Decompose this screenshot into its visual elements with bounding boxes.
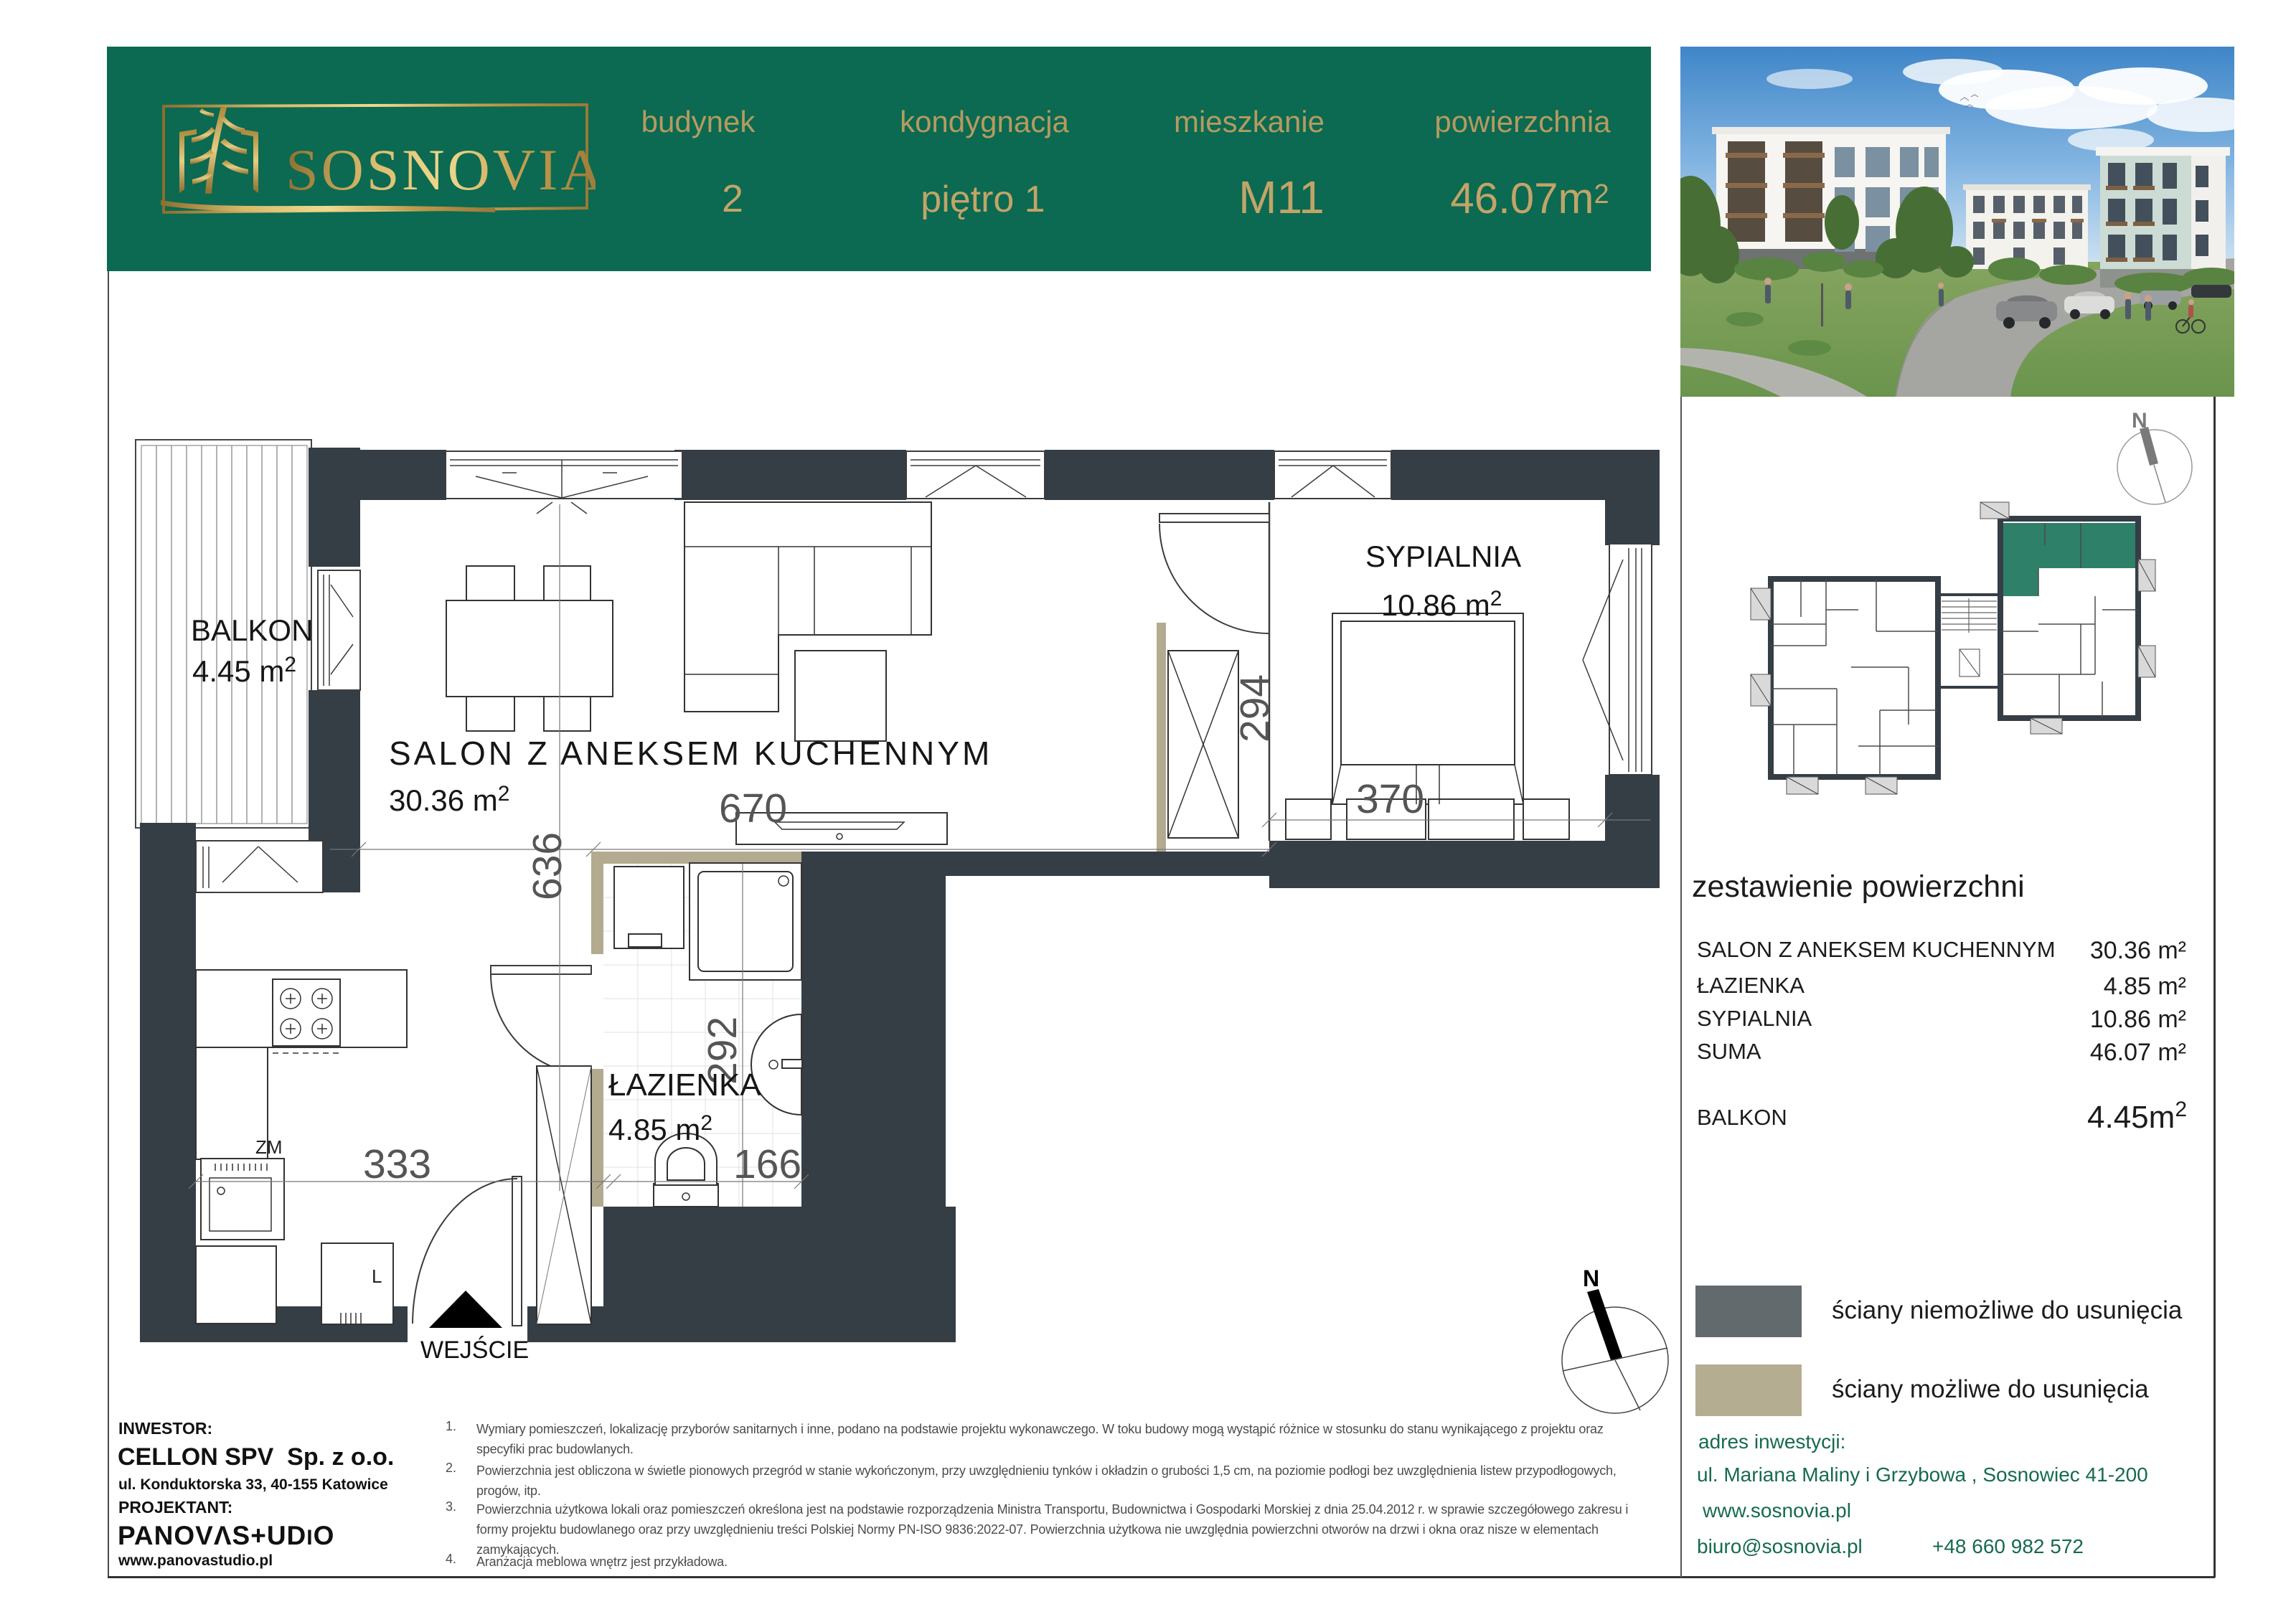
svg-text:BALKON: BALKON: [191, 613, 313, 647]
svg-text:L: L: [372, 1265, 382, 1287]
svg-text:SALON Z ANEKSEM KUCHENNYM: SALON Z ANEKSEM KUCHENNYM: [389, 735, 992, 772]
svg-text:WEJŚCIE: WEJŚCIE: [420, 1336, 529, 1364]
svg-text:294: 294: [1232, 674, 1278, 742]
svg-text:N: N: [1583, 1265, 1599, 1291]
svg-text:10.86 m2: 10.86 m2: [1381, 587, 1502, 622]
svg-text:ZM: ZM: [255, 1136, 283, 1158]
svg-text:636: 636: [524, 832, 570, 900]
svg-text:166: 166: [733, 1141, 801, 1187]
svg-text:SYPIALNIA: SYPIALNIA: [1365, 539, 1521, 573]
svg-text:N: N: [2132, 409, 2147, 433]
svg-text:4.45 m2: 4.45 m2: [192, 653, 296, 688]
svg-text:30.36 m2: 30.36 m2: [389, 782, 509, 817]
svg-text:ŁAZIENKA: ŁAZIENKA: [608, 1067, 761, 1103]
svg-text:333: 333: [363, 1141, 431, 1187]
svg-text:370: 370: [1356, 776, 1424, 822]
svg-text:4.85 m2: 4.85 m2: [608, 1111, 712, 1146]
svg-text:670: 670: [719, 786, 787, 831]
